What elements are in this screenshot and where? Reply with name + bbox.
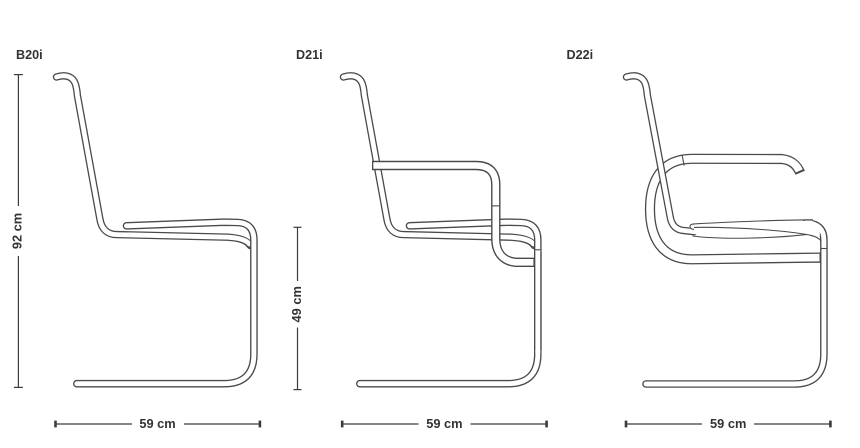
svg-text:59 cm: 59 cm <box>710 416 746 431</box>
svg-text:59 cm: 59 cm <box>139 416 175 431</box>
svg-text:D21i: D21i <box>296 48 323 62</box>
svg-text:59 cm: 59 cm <box>426 416 462 431</box>
svg-text:D22i: D22i <box>567 48 594 62</box>
svg-text:B20i: B20i <box>16 48 43 62</box>
svg-text:92 cm: 92 cm <box>10 213 25 249</box>
svg-text:49 cm: 49 cm <box>289 286 304 322</box>
